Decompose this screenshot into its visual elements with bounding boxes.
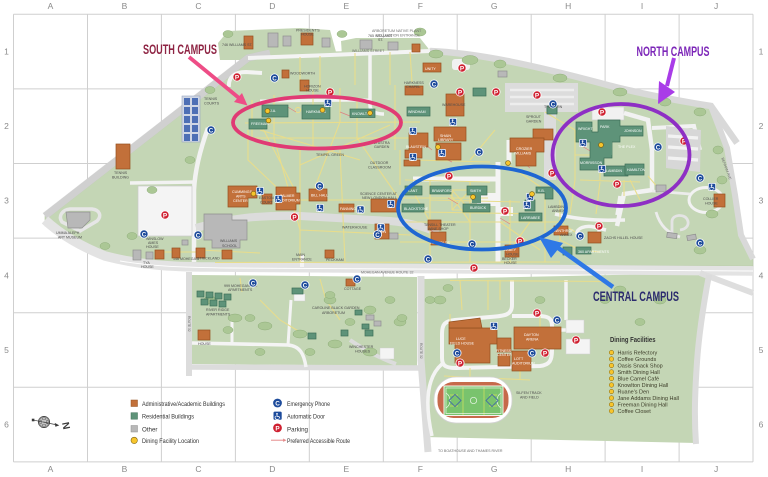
svg-text:DAYTON: DAYTON [524, 333, 539, 337]
svg-text:ARBORETUM: ARBORETUM [322, 311, 345, 315]
svg-text:WATERHOUSE: WATERHOUSE [342, 226, 368, 230]
svg-text:OUTDOOR: OUTDOOR [370, 161, 389, 165]
svg-text:2: 2 [4, 121, 9, 131]
svg-text:ROUTE 32: ROUTE 32 [187, 316, 191, 332]
svg-text:HOUSE: HOUSE [141, 265, 154, 269]
svg-text:E: E [343, 464, 349, 474]
svg-text:PARK: PARK [600, 125, 610, 129]
svg-text:CROZIER: CROZIER [516, 147, 533, 151]
svg-text:I: I [641, 464, 643, 474]
svg-text:TENNIS: TENNIS [114, 171, 128, 175]
svg-text:J.A.: J.A. [270, 109, 276, 113]
svg-text:ANNEX: ANNEX [560, 233, 573, 237]
svg-text:WINDHAM: WINDHAM [408, 110, 426, 114]
svg-text:CHAPEL: CHAPEL [406, 85, 420, 89]
svg-text:TO BOATHOUSE AND THAMES RIVER: TO BOATHOUSE AND THAMES RIVER [438, 449, 503, 453]
svg-text:TEMPEL GREEN: TEMPEL GREEN [316, 153, 344, 157]
svg-text:CENTER: CENTER [233, 199, 248, 203]
svg-text:A: A [48, 464, 54, 474]
svg-text:FIELD HOUSE: FIELD HOUSE [450, 342, 475, 346]
svg-text:PECKHAM: PECKHAM [326, 258, 344, 262]
svg-text:146 MOHEGAN: 146 MOHEGAN [173, 257, 199, 261]
svg-text:J: J [714, 1, 718, 11]
svg-text:LIBRARY: LIBRARY [438, 138, 454, 142]
svg-text:I: I [641, 1, 643, 11]
svg-text:WILLIAMS: WILLIAMS [220, 239, 238, 243]
svg-text:COURTS: COURTS [204, 102, 220, 106]
svg-text:COURT: COURT [260, 201, 274, 205]
svg-text:C: C [195, 464, 201, 474]
svg-text:ARTS: ARTS [236, 195, 246, 199]
svg-text:Blue Camel Café: Blue Camel Café [618, 377, 660, 383]
svg-text:2: 2 [759, 121, 764, 131]
svg-text:Harris Refectory: Harris Refectory [618, 351, 658, 357]
svg-text:Coffee Grounds: Coffee Grounds [618, 357, 657, 363]
svg-text:CLASSROOM: CLASSROOM [368, 166, 391, 170]
svg-text:F: F [418, 1, 423, 11]
svg-text:ZACHS HILLEL HOUSE: ZACHS HILLEL HOUSE [604, 236, 643, 240]
svg-text:WINCHESTER: WINCHESTER [349, 345, 374, 349]
svg-text:EASTON: EASTON [259, 196, 274, 200]
svg-text:ANNEX: ANNEX [552, 209, 565, 213]
svg-text:G: G [491, 1, 498, 11]
svg-text:Preferred Accessible Route: Preferred Accessible Route [287, 438, 350, 445]
svg-text:ST.: ST. [378, 38, 383, 42]
svg-text:LAMBDIN: LAMBDIN [606, 169, 622, 173]
svg-text:HOUSE: HOUSE [198, 342, 211, 346]
svg-text:THE PLEX: THE PLEX [618, 145, 636, 149]
svg-text:BILL HALL: BILL HALL [311, 194, 328, 198]
svg-text:COLLIER: COLLIER [703, 197, 719, 201]
svg-text:BRANFORD: BRANFORD [432, 189, 453, 193]
svg-text:Residential Buildings: Residential Buildings [142, 414, 194, 421]
svg-text:4: 4 [4, 270, 9, 280]
svg-text:LOTT: LOTT [514, 357, 524, 361]
svg-text:FREEMAN: FREEMAN [251, 122, 269, 126]
svg-text:ART MUSEUM: ART MUSEUM [58, 236, 82, 240]
svg-text:STRICKLAND: STRICKLAND [197, 257, 220, 261]
svg-text:HOUSE: HOUSE [306, 89, 319, 93]
svg-text:BLAUSTEIN: BLAUSTEIN [406, 145, 426, 149]
svg-text:Administrative/Academic Buildi: Administrative/Academic Buildings [142, 401, 225, 408]
svg-text:NEW LONDON HALL: NEW LONDON HALL [362, 196, 397, 200]
svg-text:JOHNSON: JOHNSON [624, 129, 642, 133]
svg-text:Parking: Parking [287, 426, 309, 433]
svg-text:HOUSE: HOUSE [506, 253, 519, 257]
svg-text:B: B [122, 1, 128, 11]
svg-text:Oasis Snack Shop: Oasis Snack Shop [618, 364, 663, 370]
svg-text:WRIGHT: WRIGHT [578, 127, 593, 131]
svg-text:E: E [343, 1, 349, 11]
svg-text:FANNING: FANNING [340, 207, 356, 211]
svg-text:COTTAGE: COTTAGE [344, 287, 362, 291]
svg-text:CAROLINE BLACK GARDEN: CAROLINE BLACK GARDEN [312, 306, 360, 310]
svg-text:AND FIELD: AND FIELD [520, 396, 539, 400]
svg-text:B: B [122, 464, 128, 474]
svg-text:6: 6 [759, 420, 764, 430]
svg-text:3: 3 [759, 196, 764, 206]
svg-text:NORTH CAMPUS: NORTH CAMPUS [637, 44, 710, 59]
svg-text:HOUSE: HOUSE [705, 202, 718, 206]
svg-text:Dining Facility Location: Dining Facility Location [142, 438, 200, 445]
svg-text:G: G [491, 464, 498, 474]
svg-text:D: D [269, 1, 275, 11]
svg-text:Smith Dining Hall: Smith Dining Hall [618, 370, 660, 376]
svg-text:D: D [269, 464, 275, 474]
svg-text:6: 6 [4, 420, 9, 430]
svg-text:5: 5 [4, 345, 9, 355]
svg-text:HOUSE: HOUSE [301, 33, 314, 37]
svg-text:Coffee Closet: Coffee Closet [618, 409, 652, 415]
svg-text:CENTRAL CAMPUS: CENTRAL CAMPUS [593, 288, 679, 305]
svg-text:SPROUT: SPROUT [526, 115, 542, 119]
svg-text:H: H [565, 1, 571, 11]
svg-text:ROUTE 32: ROUTE 32 [419, 343, 423, 359]
svg-text:WINE SHOP: WINE SHOP [428, 227, 449, 231]
svg-text:ENTRANCE: ENTRANCE [292, 258, 312, 262]
svg-text:C: C [275, 401, 280, 408]
svg-text:BUILDING: BUILDING [112, 176, 129, 180]
svg-text:ARBORETUM NATIVE PLANT: ARBORETUM NATIVE PLANT [372, 29, 422, 33]
svg-text:Freeman Dining Hall: Freeman Dining Hall [618, 403, 668, 409]
svg-text:HOUSE: HOUSE [504, 261, 517, 265]
svg-text:WILLIAMS STREET: WILLIAMS STREET [352, 49, 385, 53]
svg-text:GARDEN: GARDEN [374, 145, 390, 149]
svg-text:COLLECTION ENTRANCE: COLLECTION ENTRANCE [376, 34, 420, 38]
svg-text:A: A [48, 1, 54, 11]
svg-text:4: 4 [759, 270, 764, 280]
svg-text:APARTMENTS: APARTMENTS [206, 313, 231, 317]
svg-text:SILFEN TRACK: SILFEN TRACK [516, 391, 542, 395]
svg-text:ARENA: ARENA [526, 338, 539, 342]
svg-text:746 WILLIAMS ST.: 746 WILLIAMS ST. [222, 43, 253, 47]
svg-text:1: 1 [4, 47, 9, 57]
svg-text:MAIN: MAIN [296, 253, 305, 257]
svg-text:APARTMENTS: APARTMENTS [228, 288, 253, 292]
svg-text:GARDEN: GARDEN [526, 120, 542, 124]
svg-text:F: F [418, 464, 423, 474]
svg-text:CENTER: CENTER [497, 353, 512, 357]
svg-text:UMMA ALEPH: UMMA ALEPH [56, 231, 80, 235]
svg-text:SMITH: SMITH [470, 189, 482, 193]
svg-text:AUDITORIUM: AUDITORIUM [512, 362, 535, 366]
svg-text:HAMILTON: HAMILTON [627, 168, 646, 172]
svg-text:Ruane's Den: Ruane's Den [618, 390, 650, 396]
svg-text:WAREHOUSE: WAREHOUSE [442, 103, 466, 107]
svg-text:Automatic Door: Automatic Door [287, 414, 325, 421]
svg-text:5: 5 [759, 345, 764, 355]
svg-text:Emergency Phone: Emergency Phone [287, 401, 330, 408]
svg-text:SOUTH CAMPUS: SOUTH CAMPUS [143, 41, 217, 58]
svg-text:Dining Facilities: Dining Facilities [610, 335, 656, 344]
svg-text:MOHEGAN AVENUE ROUTE 32: MOHEGAN AVENUE ROUTE 32 [361, 271, 413, 275]
svg-text:WILLIAMS: WILLIAMS [514, 152, 532, 156]
svg-text:P: P [275, 425, 280, 432]
svg-text:RIVER RIDGE: RIVER RIDGE [206, 308, 230, 312]
svg-text:TENNIS: TENNIS [204, 97, 218, 101]
svg-text:Knowlton Dining Hall: Knowlton Dining Hall [618, 383, 669, 389]
svg-text:HOUSES: HOUSES [355, 350, 371, 354]
svg-text:CUMMINGS: CUMMINGS [232, 190, 253, 194]
svg-text:MORRISSON: MORRISSON [580, 161, 603, 165]
svg-text:UNITY: UNITY [425, 67, 436, 71]
svg-text:SCHOOL: SCHOOL [222, 244, 237, 248]
svg-text:K.B.: K.B. [538, 189, 545, 193]
svg-text:Jane Addams Dining Hall: Jane Addams Dining Hall [618, 396, 679, 402]
svg-text:360 APARTMENTS: 360 APARTMENTS [578, 250, 610, 254]
svg-text:H: H [565, 464, 571, 474]
svg-text:WOODWORTH: WOODWORTH [290, 72, 315, 76]
svg-text:HOUSE: HOUSE [146, 245, 159, 249]
svg-text:LUCE: LUCE [456, 337, 466, 341]
svg-text:3: 3 [4, 196, 9, 206]
svg-text:BURDICK: BURDICK [470, 206, 487, 210]
svg-text:C: C [195, 1, 201, 11]
svg-text:Other: Other [142, 426, 157, 433]
svg-text:BLACKSTONE: BLACKSTONE [404, 207, 429, 211]
svg-text:LARRABEE: LARRABEE [521, 216, 541, 220]
svg-text:1: 1 [759, 47, 764, 57]
svg-text:J: J [714, 464, 718, 474]
